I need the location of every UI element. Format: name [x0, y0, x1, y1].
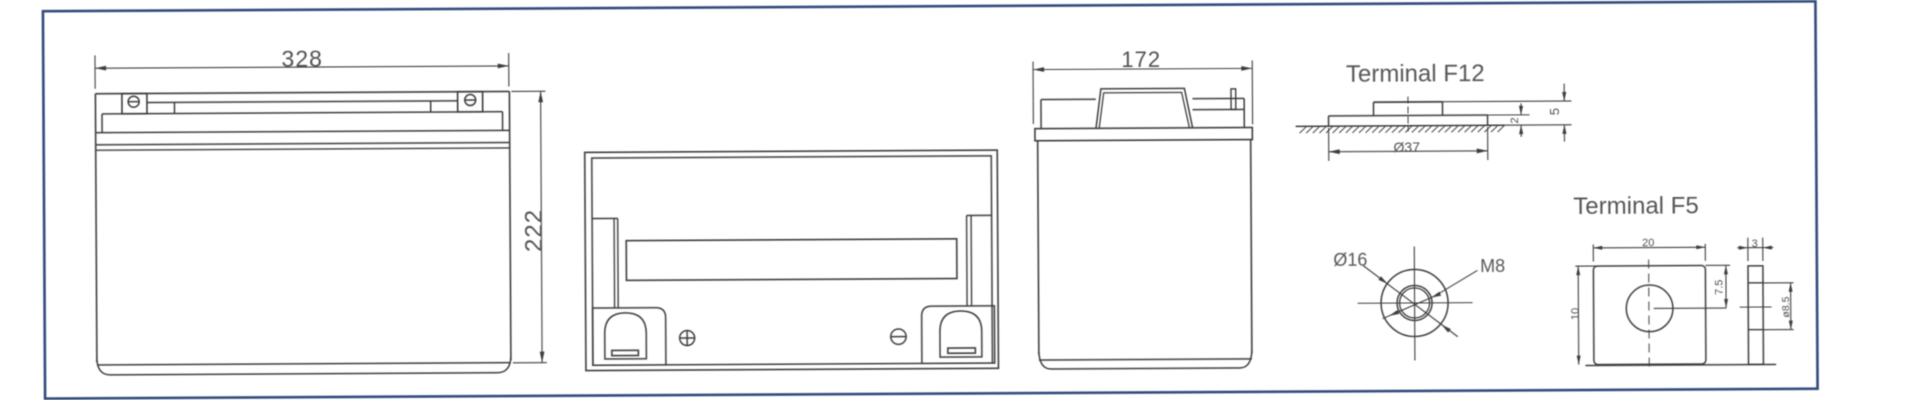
svg-text:Terminal F12: Terminal F12 — [1346, 60, 1485, 88]
svg-text:7.5: 7.5 — [1713, 280, 1725, 295]
svg-text:10: 10 — [1570, 308, 1582, 320]
svg-text:Terminal F5: Terminal F5 — [1573, 192, 1699, 220]
svg-text:20: 20 — [1642, 237, 1654, 249]
svg-text:Ø16: Ø16 — [1333, 250, 1367, 270]
svg-text:2: 2 — [1509, 117, 1521, 123]
svg-text:5: 5 — [1547, 108, 1562, 115]
svg-text:172: 172 — [1121, 47, 1161, 72]
svg-text:3: 3 — [1752, 238, 1758, 250]
svg-text:Ø37: Ø37 — [1393, 139, 1420, 155]
svg-text:ø8.5: ø8.5 — [1780, 296, 1792, 317]
svg-text:222: 222 — [521, 209, 548, 252]
svg-text:328: 328 — [281, 45, 323, 71]
svg-text:M8: M8 — [1480, 256, 1505, 276]
